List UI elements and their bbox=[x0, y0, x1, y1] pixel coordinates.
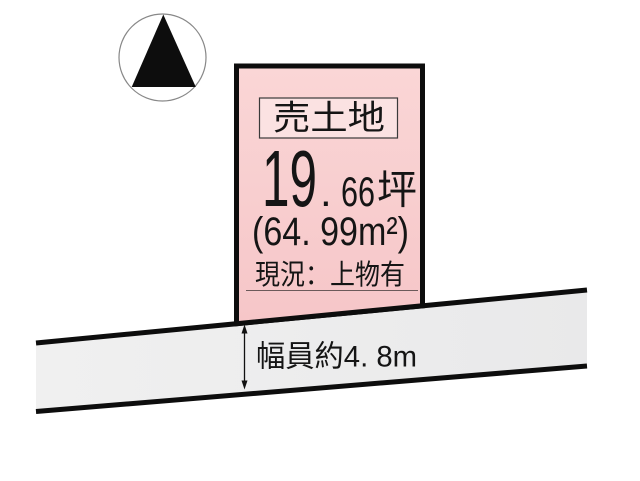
area-tsubo-frac: 66 bbox=[341, 168, 375, 215]
area-tsubo-dot: . bbox=[320, 168, 332, 215]
parcel: 売土地 19 . 66 坪 (64. 99m²) 現況：上物有 bbox=[237, 66, 423, 324]
compass bbox=[119, 14, 206, 101]
area-sqm-line: (64. 99m²) bbox=[252, 210, 409, 254]
sale-label: 売土地 bbox=[273, 100, 385, 138]
land-plot-diagram: 売土地 19 . 66 坪 (64. 99m²) 現況：上物有 幅員約4. 8m bbox=[0, 0, 640, 476]
area-tsubo-unit: 坪 bbox=[377, 169, 417, 213]
status-line: 現況：上物有 bbox=[255, 259, 405, 290]
road-width-label: 幅員約4. 8m bbox=[256, 341, 417, 374]
